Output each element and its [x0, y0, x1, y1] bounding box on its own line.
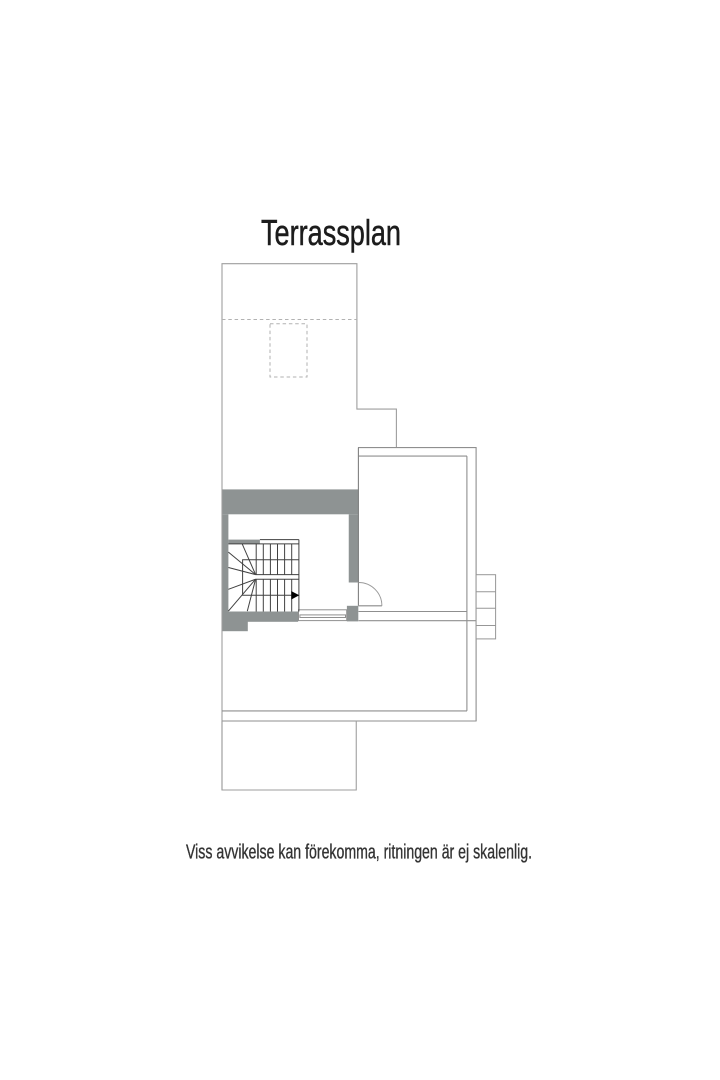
svg-text:Viss avvikelse kan förekomma,: Viss avvikelse kan förekomma, ritningen … [186, 842, 532, 864]
svg-text:Terrassplan: Terrassplan [261, 212, 401, 253]
